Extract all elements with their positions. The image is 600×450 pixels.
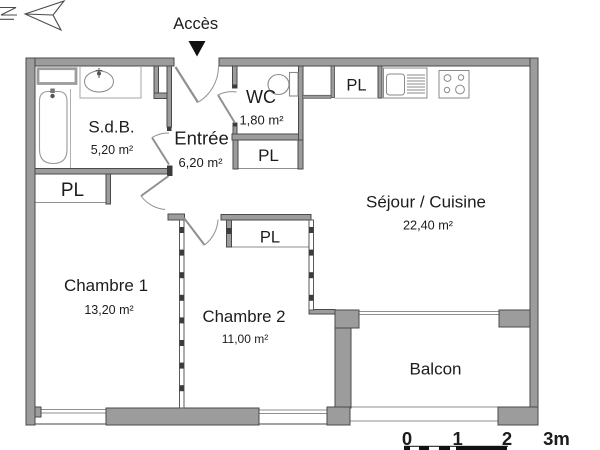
- svg-text:22,40 m²: 22,40 m²: [403, 219, 453, 233]
- svg-text:Séjour / Cuisine: Séjour / Cuisine: [366, 193, 486, 212]
- svg-text:Chambre 2: Chambre 2: [202, 307, 285, 326]
- svg-text:WC: WC: [246, 87, 276, 107]
- svg-text:S.d.B.: S.d.B.: [88, 118, 134, 137]
- svg-text:13,20 m²: 13,20 m²: [84, 303, 133, 317]
- svg-text:1,80 m²: 1,80 m²: [239, 113, 284, 128]
- svg-text:Accès: Accès: [173, 15, 218, 33]
- svg-text:PL: PL: [258, 146, 279, 165]
- svg-text:6,20 m²: 6,20 m²: [178, 155, 223, 170]
- svg-text:Balcon: Balcon: [410, 360, 462, 379]
- svg-text:PL: PL: [260, 229, 280, 247]
- svg-text:Chambre 1: Chambre 1: [64, 276, 148, 295]
- svg-text:3m: 3m: [543, 428, 570, 449]
- svg-text:PL: PL: [61, 180, 84, 201]
- svg-text:PL: PL: [346, 77, 366, 95]
- svg-text:11,00 m²: 11,00 m²: [222, 332, 268, 346]
- svg-text:5,20 m²: 5,20 m²: [91, 143, 133, 157]
- svg-text:Entrée: Entrée: [174, 128, 229, 149]
